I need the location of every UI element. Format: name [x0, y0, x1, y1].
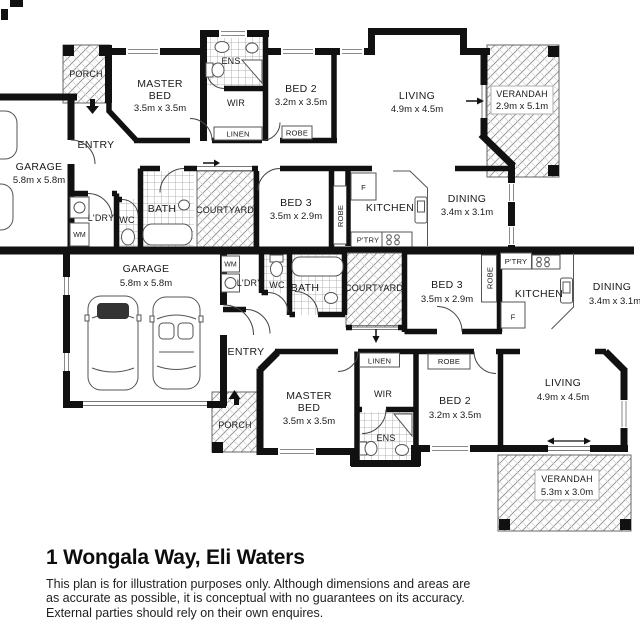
- room-label-garage-bottom: GARAGE: [123, 263, 170, 275]
- room-dims-bed2-top: 3.2m x 3.5m: [275, 97, 327, 108]
- ens-toilet-bottom: [365, 442, 377, 456]
- wc-toilet-bottom: [271, 262, 283, 277]
- room-label-bath-bottom: BATH: [291, 282, 319, 294]
- room-label-fridge-top: F: [361, 183, 366, 192]
- room-label-wc-top: WC: [119, 215, 135, 225]
- room-label-entry-bottom: ENTRY: [228, 346, 265, 358]
- room-label-garage-top: GARAGE: [16, 161, 63, 173]
- room-label-bed2-top: BED 2: [285, 83, 317, 95]
- title-block: 1 Wongala Way, Eli Waters This plan is f…: [46, 546, 606, 620]
- room-label-verandah-bottom: VERANDAH: [541, 474, 593, 484]
- garage-door-bottom: [83, 402, 207, 406]
- top-unit: GARAGE 5.8m x 5.8m PORCH ENTRY MASTER BE…: [0, 29, 559, 250]
- address-title: 1 Wongala Way, Eli Waters: [46, 546, 606, 570]
- room-label-wir-top: WIR: [227, 98, 245, 108]
- room-label-robe2-bottom: ROBE: [438, 357, 460, 366]
- room-label-wc-bottom: WC: [269, 280, 285, 290]
- room-label-kitchen-bottom: KITCHEN: [515, 288, 563, 300]
- bottom-unit: GARAGE 5.8m x 5.8m WM L'DRY WC BATH COUR…: [62, 250, 640, 531]
- room-label-porch-bottom: PORCH: [218, 420, 252, 430]
- bath-basin-bottom: [325, 293, 338, 304]
- disclaimer-line-3: External parties should rely on their ow…: [46, 606, 323, 620]
- room-dims-dining-bottom: 3.4m x 3.1m: [589, 296, 640, 307]
- room-label-wir-bottom: WIR: [374, 389, 392, 399]
- room-label-living-top: LIVING: [399, 90, 435, 102]
- room-dims-living-top: 4.9m x 4.5m: [391, 104, 443, 115]
- room-dims-master-top: 3.5m x 3.5m: [134, 103, 186, 114]
- room-label-linen-bottom: LINEN: [368, 357, 391, 366]
- room-label-pantry-top: P'TRY: [357, 236, 380, 245]
- room-dims-verandah-top: 2.9m x 5.1m: [496, 101, 548, 112]
- room-label-ens-top: ENS: [221, 56, 240, 66]
- room-label-fridge-bottom: F: [511, 313, 516, 322]
- room-label-entry-top: ENTRY: [78, 139, 115, 151]
- ens-basin1-top: [215, 42, 229, 53]
- car-partial-2-top: [0, 184, 13, 230]
- room-label-bath-top: BATH: [148, 203, 176, 215]
- room-label-robe3-bottom: ROBE: [486, 267, 495, 289]
- car-convertible: [150, 297, 203, 389]
- room-dims-living-bottom: 4.9m x 4.5m: [537, 392, 589, 403]
- room-label-living-bottom: LIVING: [545, 377, 581, 389]
- room-label-master-top-2: BED: [149, 90, 172, 102]
- room-dims-verandah-bottom: 5.3m x 3.0m: [541, 487, 593, 498]
- floorplan-svg: GARAGE 5.8m x 5.8m PORCH ENTRY MASTER BE…: [0, 0, 640, 640]
- room-label-master-bottom-2: BED: [298, 402, 321, 414]
- room-dims-garage-bottom: 5.8m x 5.8m: [120, 278, 172, 289]
- room-label-verandah-top: VERANDAH: [496, 89, 548, 99]
- room-label-ldry-bottom: L'DRY: [237, 278, 264, 288]
- room-label-dining-top: DINING: [448, 193, 487, 205]
- room-dims-bed2-bottom: 3.2m x 3.5m: [429, 410, 481, 421]
- room-dims-bed3-bottom: 3.5m x 2.9m: [421, 294, 473, 305]
- room-label-robe2-top: ROBE: [286, 129, 308, 138]
- car-partial-1-top: [0, 111, 17, 159]
- disclaimer-line-2: as accurate as possible, it is conceptua…: [46, 591, 465, 605]
- room-label-kitchen-top: KITCHEN: [366, 202, 414, 214]
- room-label-dining-bottom: DINING: [593, 281, 632, 293]
- bath-basin-top: [179, 200, 190, 210]
- room-label-ldry-top: L'DRY: [88, 213, 115, 223]
- room-label-master-bottom-1: MASTER: [286, 390, 332, 402]
- room-label-bed2-bottom: BED 2: [439, 395, 471, 407]
- bathtub-top: [143, 224, 192, 245]
- floorplan-page: GARAGE 5.8m x 5.8m PORCH ENTRY MASTER BE…: [0, 0, 640, 640]
- car-sedan: [85, 296, 141, 390]
- ens-basin-bottom: [396, 445, 409, 456]
- wc-toilet-tank-bottom: [270, 255, 283, 262]
- room-label-pantry-bottom: P'TRY: [505, 257, 528, 266]
- room-label-linen-top: LINEN: [226, 130, 249, 139]
- disclaimer-line-1: This plan is for illustration purposes o…: [46, 577, 470, 591]
- ens-basin2-top: [246, 43, 258, 53]
- room-label-bed3-bottom: BED 3: [431, 279, 463, 291]
- room-dims-bed3-top: 3.5m x 2.9m: [270, 211, 322, 222]
- room-label-wm-top: WM: [73, 232, 86, 239]
- room-label-courtyard-bottom: COURTYARD: [345, 283, 403, 293]
- cut-off-wall-fragments: [1, 0, 23, 20]
- room-dims-master-bottom: 3.5m x 3.5m: [283, 416, 335, 427]
- disclaimer-text: This plan is for illustration purposes o…: [46, 577, 606, 620]
- room-dims-garage-top: 5.8m x 5.8m: [13, 175, 65, 186]
- room-label-wm-bottom: WM: [224, 262, 237, 269]
- room-label-bed3-top: BED 3: [280, 197, 312, 209]
- room-label-courtyard-top: COURTYARD: [196, 205, 254, 215]
- room-dims-dining-top: 3.4m x 3.1m: [441, 207, 493, 218]
- wc-toilet-top: [122, 229, 135, 245]
- room-label-robe3-top: ROBE: [336, 205, 345, 227]
- bathtub-bottom: [292, 257, 343, 276]
- room-label-porch-top: PORCH: [69, 69, 103, 79]
- room-label-master-top-1: MASTER: [137, 78, 183, 90]
- room-label-ens-bottom: ENS: [376, 433, 395, 443]
